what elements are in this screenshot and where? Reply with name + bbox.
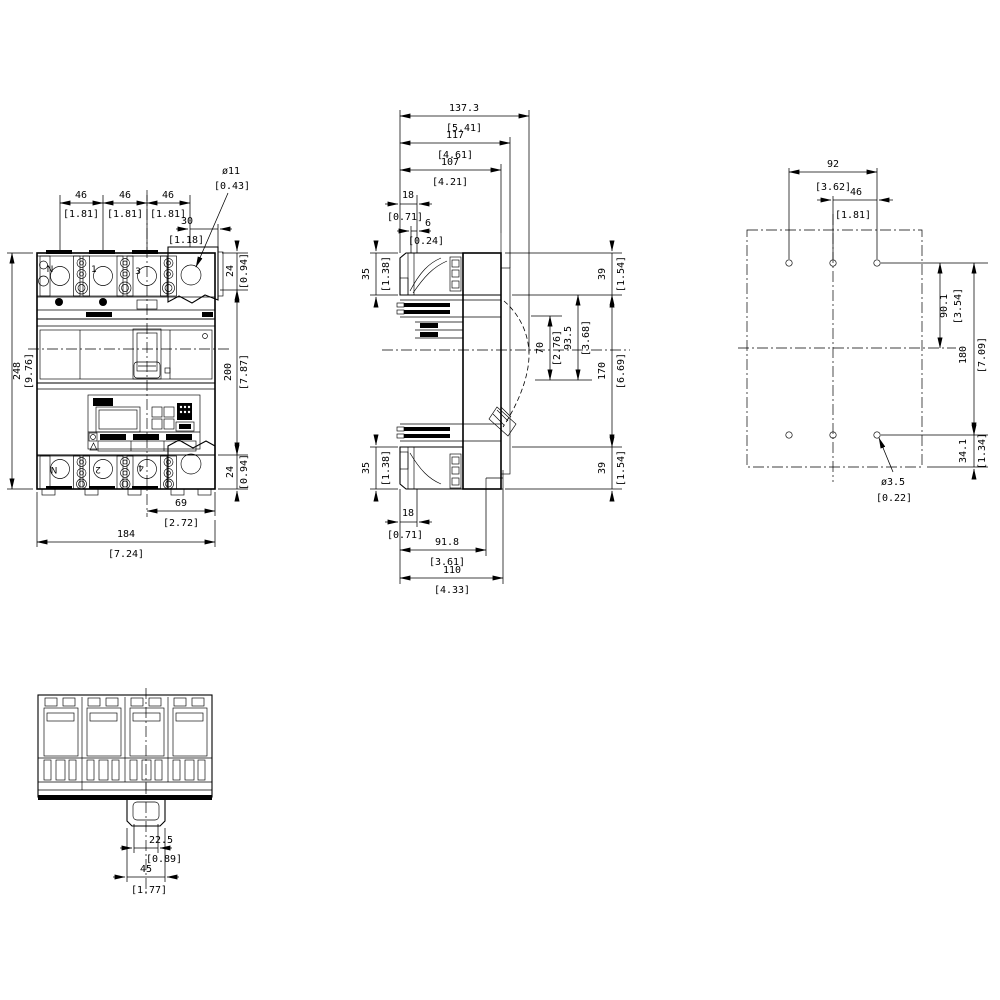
dim-depth-rail-mm: 117 xyxy=(446,130,464,141)
dim-terminal-h-top-mm: 24 xyxy=(225,265,236,277)
dim-depth-max-mm: 137.3 xyxy=(449,103,479,114)
dim-shroud-h-bottom-in: [1.38] xyxy=(381,450,392,486)
dim-handle-depth-in: [3.68] xyxy=(581,320,592,356)
dim-tab-w-mm: 22.5 xyxy=(149,835,173,846)
dim-pole-pitch-2-mm: 46 xyxy=(119,190,131,201)
dim-hole-offset-mm: 30 xyxy=(181,216,193,227)
background xyxy=(0,0,1000,1000)
terminal-label: 4 xyxy=(138,462,144,472)
terminal-label: N xyxy=(51,464,58,474)
dim-handle-travel-mm: 70 xyxy=(535,342,546,354)
dim-front-depth-top-mm: 18 xyxy=(402,190,414,201)
dim-terminal-h-top-in: [0.94] xyxy=(239,253,250,289)
dim-gap-in: [0.24] xyxy=(408,236,444,247)
dim-depth-body-in: [4.21] xyxy=(432,177,468,188)
terminal-label: 3 xyxy=(135,267,141,277)
dim-row-to-center-in: [3.54] xyxy=(953,288,964,324)
breaker-dimensional-drawing: N 1 3 xyxy=(0,0,1000,1000)
dim-pole-pitch-1-mm: 46 xyxy=(75,190,87,201)
dim-terminal-h-bottom-mm: 39 xyxy=(597,462,608,474)
dim-gap-mm: 6 xyxy=(425,218,431,229)
dim-terminal-h-top-mm: 39 xyxy=(597,268,608,280)
dim-plan-hole-dia-mm: ø3.5 xyxy=(881,477,905,488)
dim-hole-pitch-in: [1.81] xyxy=(835,210,871,221)
dim-ext-w-in: [2.72] xyxy=(163,518,199,529)
terminal-label: 1 xyxy=(91,265,97,275)
din-rail-bar xyxy=(38,795,212,800)
dim-overall-h-mm: 248 xyxy=(12,362,23,380)
dim-shroud-h-top-in: [1.38] xyxy=(381,256,392,292)
dim-row-span-in: [7.09] xyxy=(977,337,988,373)
dim-handle-depth-mm: 93.5 xyxy=(563,326,574,350)
dim-slot-w-mm: 45 xyxy=(140,864,152,875)
dim-depth-lower-mm: 91.8 xyxy=(435,537,459,548)
dim-terminal-h-bottom-mm: 24 xyxy=(225,466,236,478)
dim-body-h-mm: 170 xyxy=(597,362,608,380)
dim-terminal-h-top-in: [1.54] xyxy=(616,256,627,292)
dim-shroud-h-bottom-mm: 35 xyxy=(361,462,372,474)
dim-overall-h-in: [9.76] xyxy=(24,353,35,389)
dim-row-span-mm: 180 xyxy=(958,346,969,364)
dim-overall-w-in: [7.24] xyxy=(108,549,144,560)
dim-body-h-in: [6.69] xyxy=(616,353,627,389)
dim-row-to-edge-in: [1.34] xyxy=(977,433,988,469)
dim-hole-offset-in: [1.18] xyxy=(168,235,204,246)
dim-terminal-h-bottom-in: [1.54] xyxy=(616,450,627,486)
dim-plan-hole-dia-in: [0.22] xyxy=(876,493,912,504)
dim-pole-pitch-2-in: [1.81] xyxy=(107,209,143,220)
dim-ext-w-mm: 69 xyxy=(175,498,187,509)
dim-depth-body-mm: 107 xyxy=(441,157,459,168)
dim-terminal-h-bottom-in: [0.94] xyxy=(239,454,250,490)
dim-row-to-edge-mm: 34.1 xyxy=(958,439,969,463)
terminal-label: 2 xyxy=(95,464,101,474)
dim-base-h-in: [7.87] xyxy=(239,354,250,390)
dim-row-to-center-mm: 90.1 xyxy=(939,294,950,318)
dim-base-h-mm: 200 xyxy=(223,363,234,381)
dim-pole-pitch-3-mm: 46 xyxy=(162,190,174,201)
dim-depth-base-mm: 110 xyxy=(443,565,461,576)
dim-hole-dia-in: [0.43] xyxy=(214,181,250,192)
dim-handle-travel-in: [2.76] xyxy=(552,330,563,366)
nameplate-label xyxy=(86,312,112,317)
dim-front-depth-bottom-mm: 18 xyxy=(402,508,414,519)
dim-hole-pitch-mm: 46 xyxy=(850,187,862,198)
dim-hole-span-in: [3.62] xyxy=(815,182,851,193)
dim-shroud-h-top-mm: 35 xyxy=(361,268,372,280)
terminal-label: N xyxy=(47,265,54,275)
dim-hole-span-mm: 92 xyxy=(827,159,839,170)
dim-hole-dia-mm: ø11 xyxy=(222,166,240,177)
dim-front-depth-bottom-in: [0.71] xyxy=(387,530,423,541)
dim-depth-base-in: [4.33] xyxy=(434,585,470,596)
dim-front-depth-top-in: [0.71] xyxy=(387,212,423,223)
dim-slot-w-in: [1.77] xyxy=(131,885,167,896)
dim-overall-w-mm: 184 xyxy=(117,529,135,540)
technical-drawing-page: N 1 3 xyxy=(0,0,1000,1000)
dim-pole-pitch-1-in: [1.81] xyxy=(63,209,99,220)
